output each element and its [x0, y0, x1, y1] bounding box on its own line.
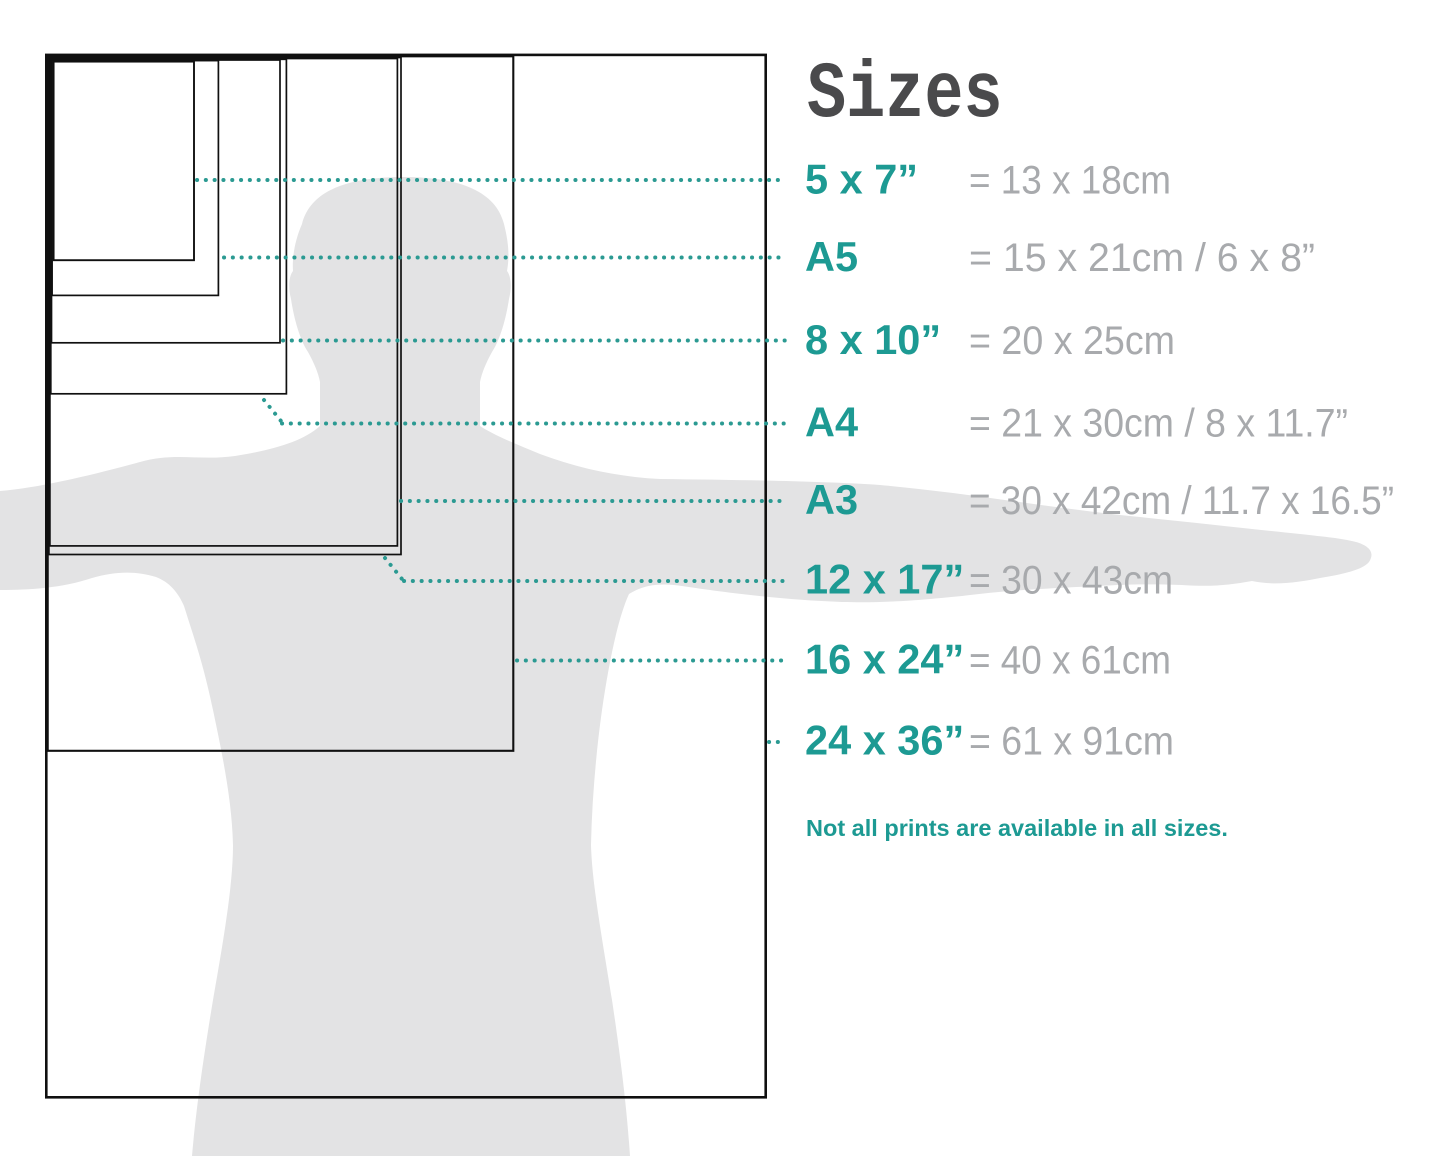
svg-text:A3: A3	[805, 476, 858, 523]
svg-text:= 61 x 91cm: = 61 x 91cm	[969, 720, 1174, 764]
svg-text:Not all prints are available i: Not all prints are available in all size…	[806, 815, 1228, 841]
svg-text:= 13 x 18cm: = 13 x 18cm	[969, 159, 1171, 203]
svg-text:= 40 x 61cm: = 40 x 61cm	[969, 639, 1171, 683]
svg-text:= 20 x 25cm: = 20 x 25cm	[969, 319, 1175, 363]
svg-text:= 30 x 43cm: = 30 x 43cm	[969, 559, 1173, 603]
svg-text:5 x 7”: 5 x 7”	[805, 156, 918, 203]
svg-text:24 x 36”: 24 x 36”	[805, 717, 964, 764]
svg-text:12 x 17”: 12 x 17”	[805, 556, 964, 603]
svg-text:= 15 x 21cm / 6 x 8”: = 15 x 21cm / 6 x 8”	[969, 236, 1315, 280]
svg-text:= 21 x 30cm / 8 x 11.7”: = 21 x 30cm / 8 x 11.7”	[969, 402, 1348, 446]
svg-text:= 30 x 42cm / 11.7 x 16.5”: = 30 x 42cm / 11.7 x 16.5”	[969, 479, 1394, 523]
svg-text:A5: A5	[805, 233, 858, 280]
svg-text:Sizes: Sizes	[807, 49, 1003, 140]
svg-text:16 x 24”: 16 x 24”	[805, 636, 964, 683]
svg-text:8 x 10”: 8 x 10”	[805, 316, 941, 363]
svg-text:A4: A4	[805, 399, 858, 446]
